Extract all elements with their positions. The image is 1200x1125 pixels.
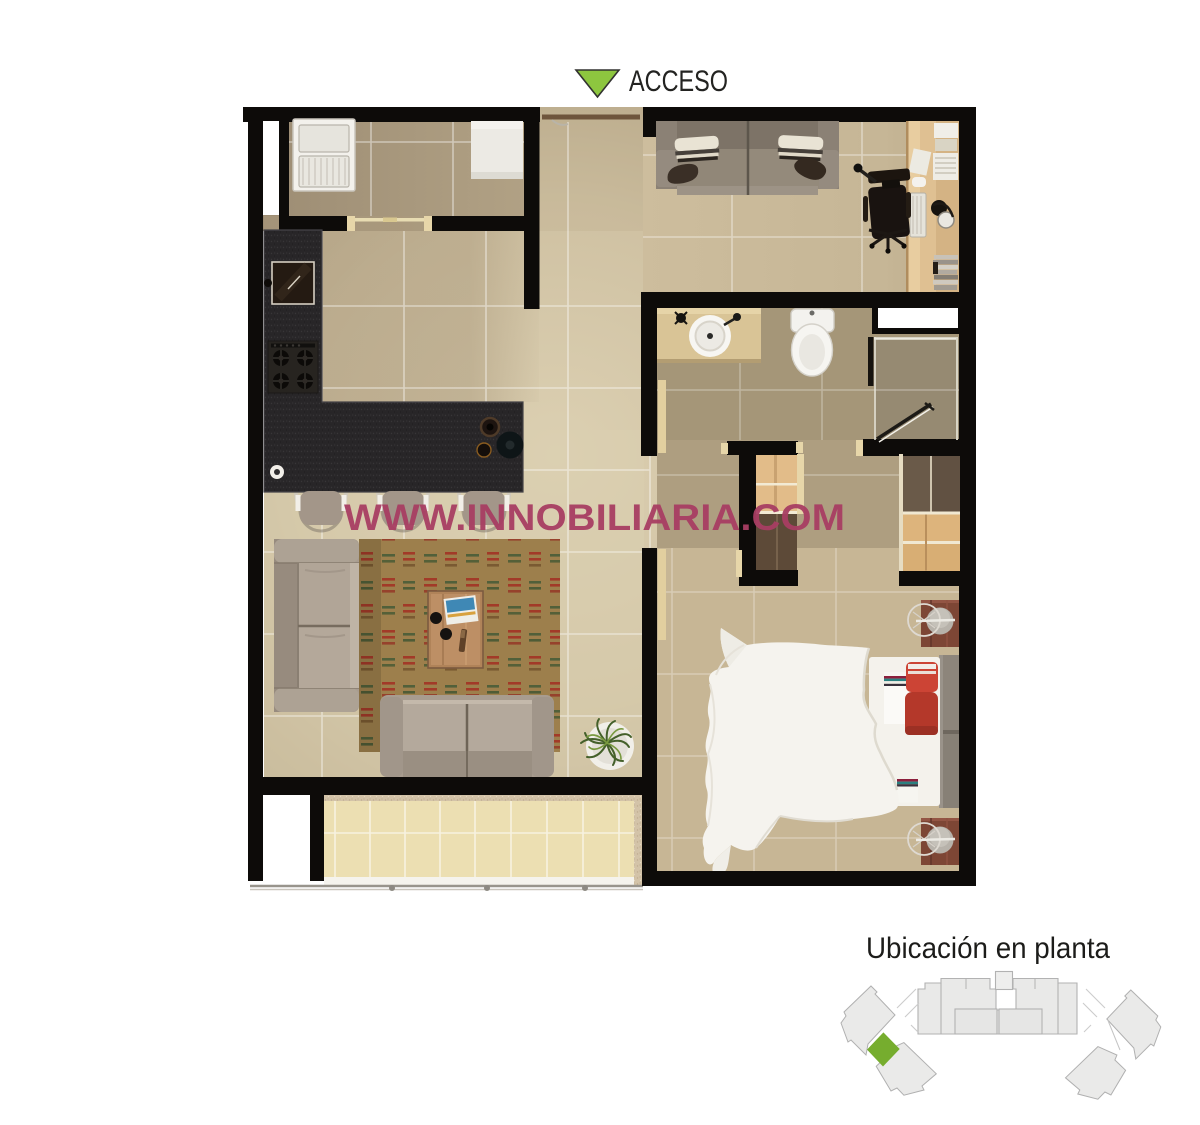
svg-text:WWW.INNOBILIARIA.COM: WWW.INNOBILIARIA.COM (344, 497, 845, 538)
svg-text:Ubicación en planta: Ubicación en planta (866, 932, 1110, 965)
svg-text:ACCESO: ACCESO (629, 65, 728, 98)
